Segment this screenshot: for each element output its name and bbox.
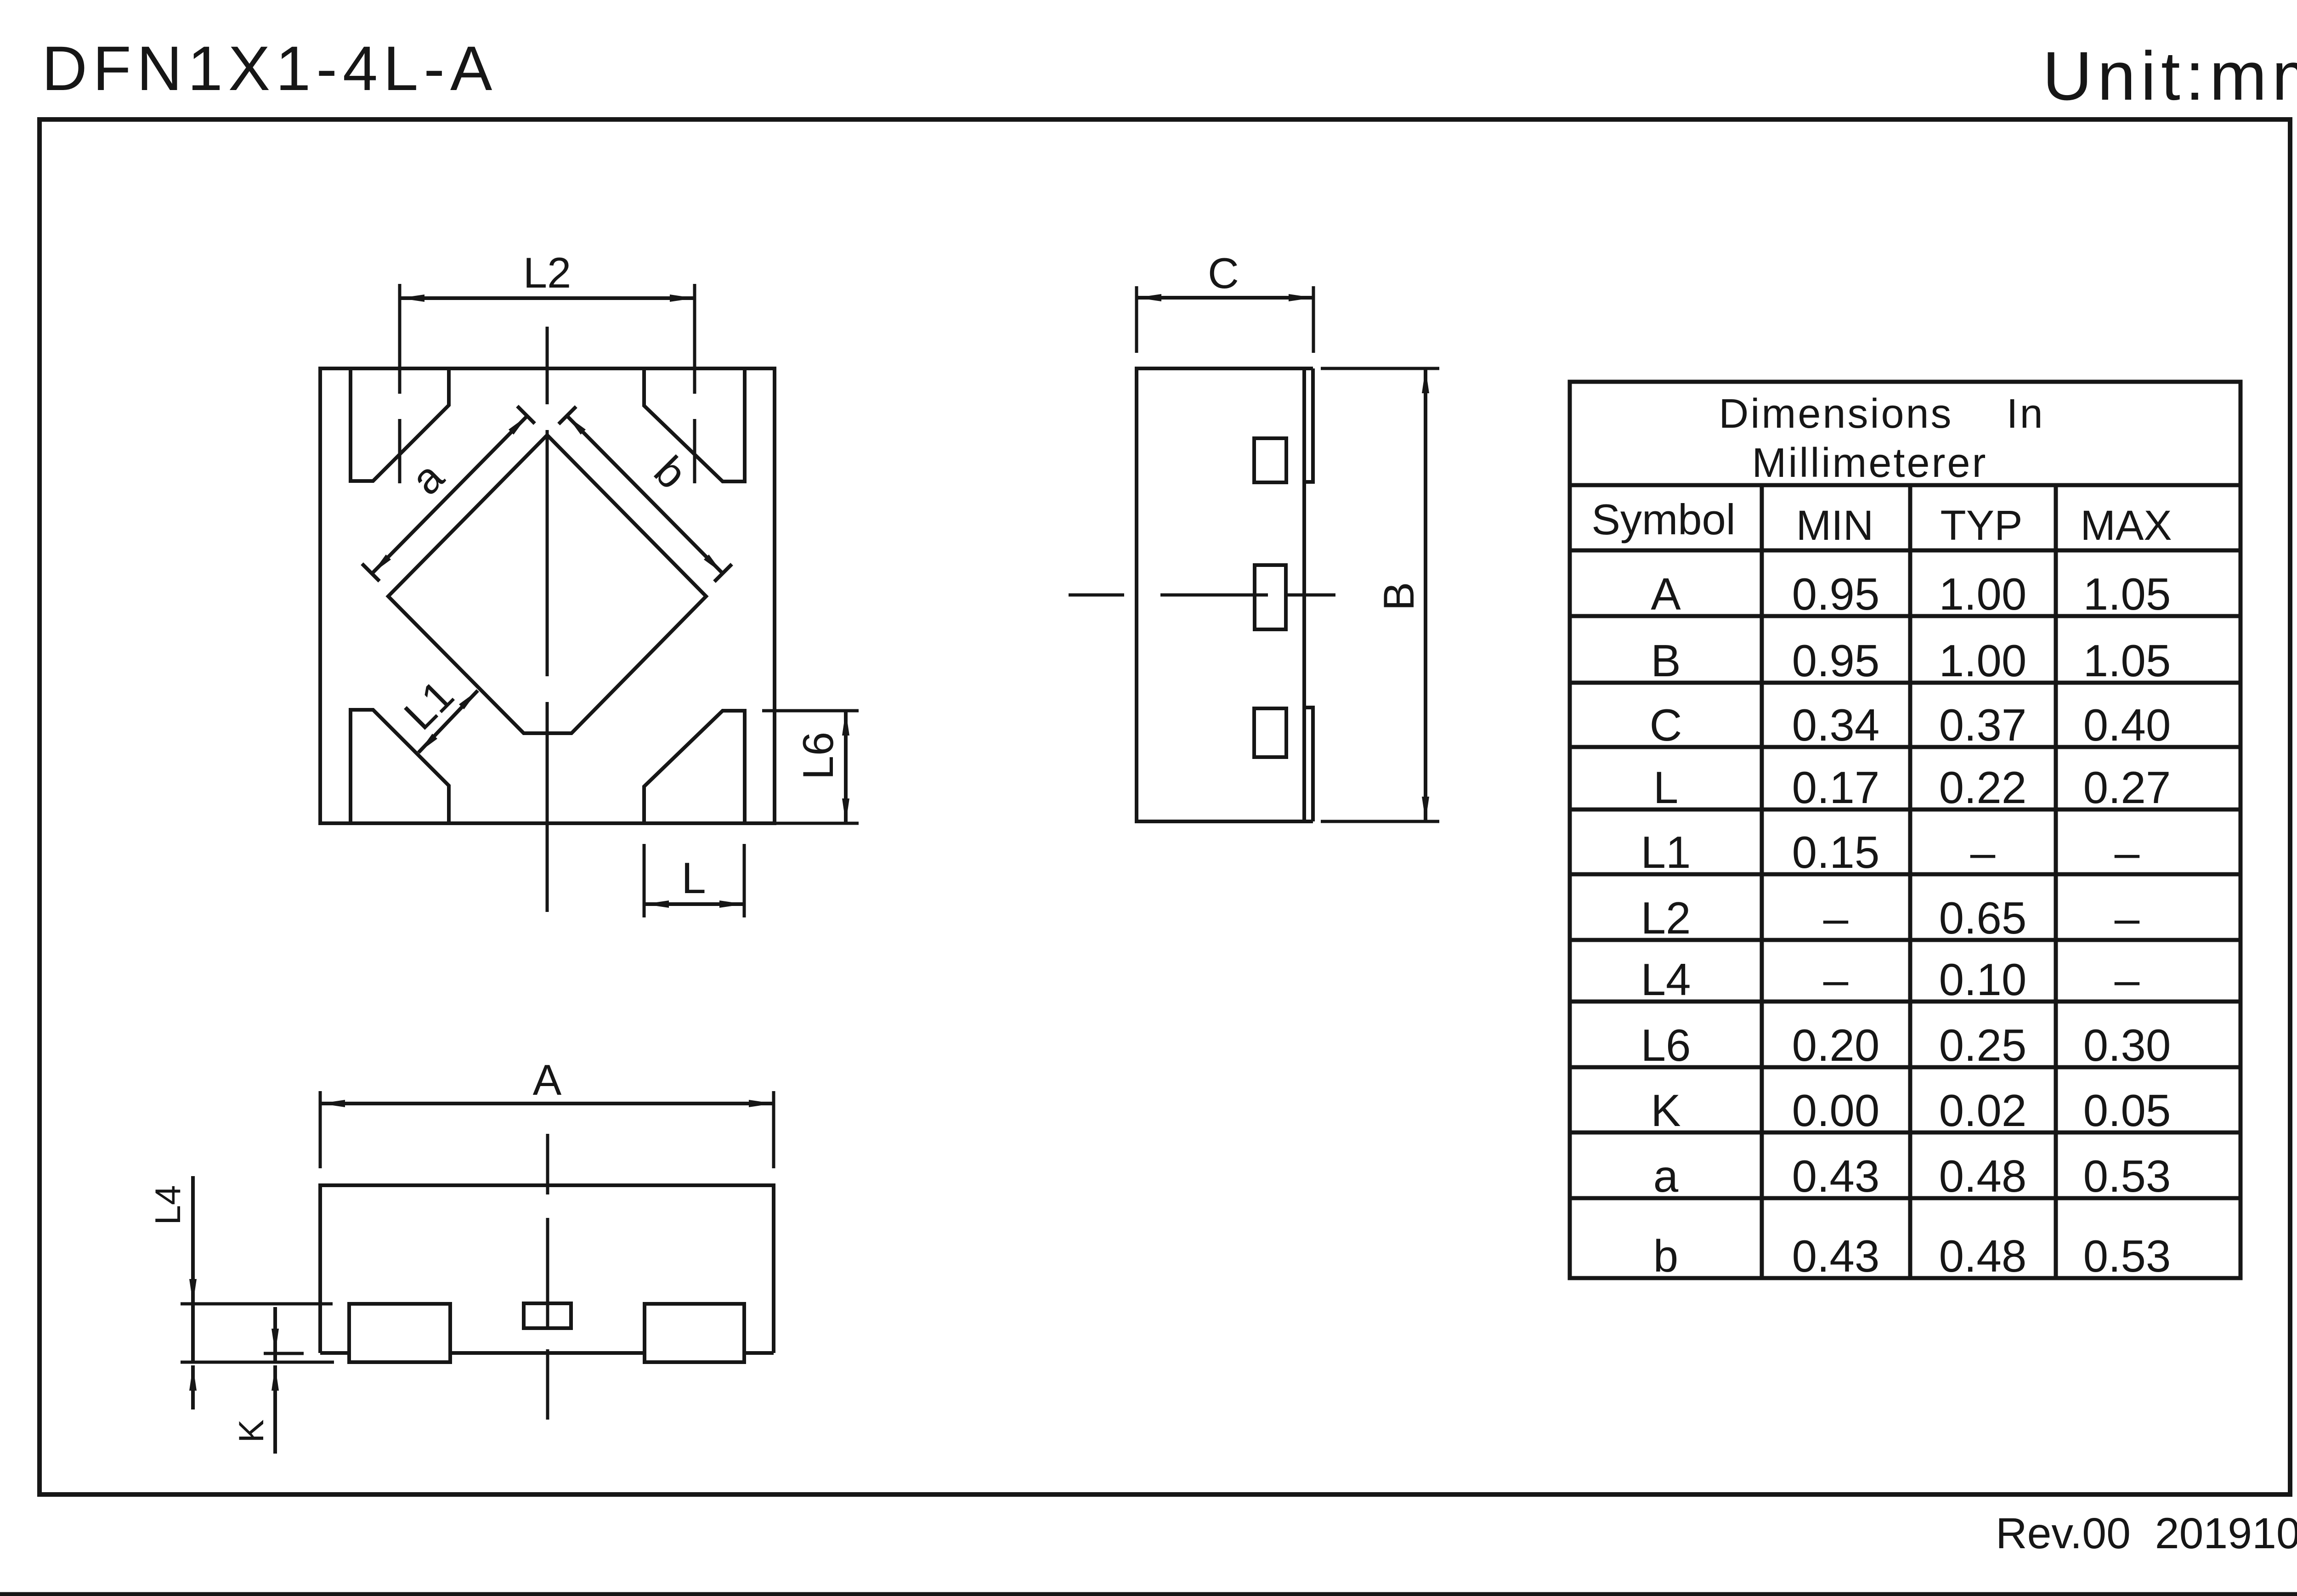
svg-text:B: B bbox=[1651, 635, 1680, 686]
svg-text:L4: L4 bbox=[147, 1185, 188, 1225]
svg-text:0.00: 0.00 bbox=[1792, 1085, 1880, 1136]
svg-text:0.53: 0.53 bbox=[2083, 1231, 2171, 1281]
svg-text:0.65: 0.65 bbox=[1939, 893, 2027, 943]
svg-text:–: – bbox=[2115, 954, 2140, 1005]
svg-text:K: K bbox=[1651, 1085, 1680, 1136]
svg-text:C: C bbox=[1650, 700, 1682, 750]
svg-text:0.25: 0.25 bbox=[1939, 1020, 2027, 1070]
svg-text:1.05: 1.05 bbox=[2083, 635, 2171, 686]
svg-text:Rev.00 201910: Rev.00 201910 bbox=[1996, 1509, 2297, 1558]
svg-text:C: C bbox=[1208, 249, 1239, 297]
svg-text:–: – bbox=[2115, 893, 2140, 943]
svg-text:–: – bbox=[2115, 827, 2140, 877]
svg-text:0.17: 0.17 bbox=[1792, 762, 1880, 813]
svg-text:L6: L6 bbox=[1641, 1020, 1691, 1070]
svg-text:0.95: 0.95 bbox=[1792, 635, 1880, 686]
svg-text:L6: L6 bbox=[794, 732, 842, 780]
svg-text:0.95: 0.95 bbox=[1792, 569, 1880, 619]
svg-text:0.05: 0.05 bbox=[2083, 1085, 2171, 1136]
svg-text:MAX: MAX bbox=[2080, 502, 2172, 549]
svg-text:0.34: 0.34 bbox=[1792, 700, 1880, 750]
svg-text:–: – bbox=[1970, 827, 1996, 877]
svg-text:0.37: 0.37 bbox=[1939, 700, 2027, 750]
svg-text:0.20: 0.20 bbox=[1792, 1020, 1880, 1070]
svg-text:Unit:mm: Unit:mm bbox=[2042, 37, 2297, 114]
svg-text:MIN: MIN bbox=[1796, 502, 1874, 549]
svg-text:a: a bbox=[1653, 1151, 1679, 1201]
svg-text:L1: L1 bbox=[1641, 827, 1691, 877]
svg-text:K: K bbox=[232, 1420, 271, 1443]
svg-text:A: A bbox=[1651, 569, 1681, 619]
svg-text:0.27: 0.27 bbox=[2083, 762, 2171, 813]
svg-text:0.48: 0.48 bbox=[1939, 1231, 2027, 1281]
svg-text:0.53: 0.53 bbox=[2083, 1151, 2171, 1201]
svg-text:0.10: 0.10 bbox=[1939, 954, 2027, 1005]
svg-text:L: L bbox=[681, 854, 706, 903]
svg-text:TYP: TYP bbox=[1941, 502, 2023, 549]
svg-text:–: – bbox=[1823, 893, 1849, 943]
svg-text:1.00: 1.00 bbox=[1939, 569, 2027, 619]
svg-text:a: a bbox=[402, 453, 453, 504]
svg-text:Dimensions In: Dimensions In bbox=[1719, 391, 2044, 437]
svg-text:L2: L2 bbox=[1641, 893, 1691, 943]
svg-text:1.05: 1.05 bbox=[2083, 569, 2171, 619]
svg-text:L4: L4 bbox=[1641, 954, 1691, 1005]
svg-text:DFN1X1-4L-A: DFN1X1-4L-A bbox=[42, 34, 498, 104]
svg-text:B: B bbox=[1375, 582, 1423, 611]
svg-text:0.43: 0.43 bbox=[1792, 1151, 1880, 1201]
svg-text:b: b bbox=[1653, 1231, 1679, 1281]
svg-text:Symbol: Symbol bbox=[1591, 495, 1735, 543]
svg-text:–: – bbox=[1823, 954, 1849, 1005]
svg-text:1.00: 1.00 bbox=[1939, 635, 2027, 686]
svg-text:Millimeterer: Millimeterer bbox=[1752, 440, 1987, 486]
svg-text:0.15: 0.15 bbox=[1792, 827, 1880, 877]
svg-text:0.30: 0.30 bbox=[2083, 1020, 2171, 1070]
svg-text:b: b bbox=[645, 447, 696, 498]
svg-text:0.40: 0.40 bbox=[2083, 700, 2171, 750]
svg-text:L1: L1 bbox=[395, 671, 463, 739]
svg-text:L: L bbox=[1653, 762, 1679, 813]
svg-text:0.22: 0.22 bbox=[1939, 762, 2027, 813]
svg-text:L2: L2 bbox=[523, 249, 571, 297]
svg-text:A: A bbox=[533, 1056, 562, 1104]
svg-text:0.48: 0.48 bbox=[1939, 1151, 2027, 1201]
svg-text:0.02: 0.02 bbox=[1939, 1085, 2027, 1136]
svg-text:0.43: 0.43 bbox=[1792, 1231, 1880, 1281]
